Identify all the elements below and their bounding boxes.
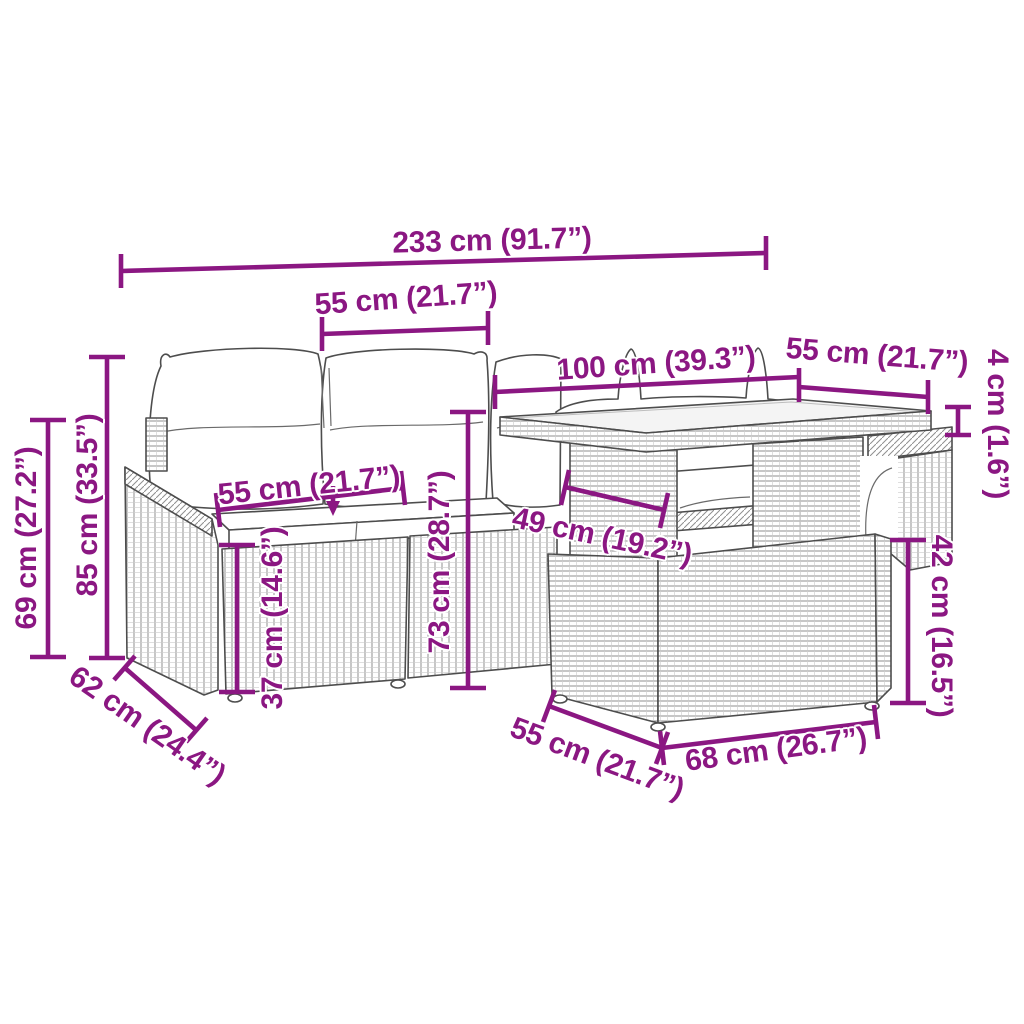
dim-tabletop-thickness-label: 4 cm (1.6”) bbox=[980, 349, 1014, 499]
dimension-diagram: 233 cm (91.7”) 55 cm (21.7”) 100 cm (39.… bbox=[0, 0, 1024, 1024]
table-base-right-face bbox=[875, 534, 891, 702]
table-foot bbox=[651, 723, 665, 731]
dim-backrest-height-label: 73 cm (28.7”) bbox=[423, 471, 457, 654]
sofa-foot bbox=[391, 680, 405, 688]
table bbox=[500, 399, 931, 731]
seat-base-1 bbox=[222, 537, 408, 694]
dim-armrest-height-label: 69 cm (27.2”) bbox=[10, 447, 44, 630]
sofa-foot bbox=[228, 694, 242, 702]
dim-total-width-label: 233 cm (91.7”) bbox=[392, 221, 592, 260]
furniture-line-art bbox=[0, 0, 1024, 1024]
dim-seat-height-label: 37 cm (14.6”) bbox=[256, 527, 290, 710]
dim-total-height-label: 85 cm (33.5”) bbox=[71, 414, 105, 597]
dim-table-base-height-label: 42 cm (16.5”) bbox=[924, 535, 958, 718]
table-base-front-face bbox=[658, 534, 877, 723]
armrest-knob bbox=[146, 418, 167, 471]
